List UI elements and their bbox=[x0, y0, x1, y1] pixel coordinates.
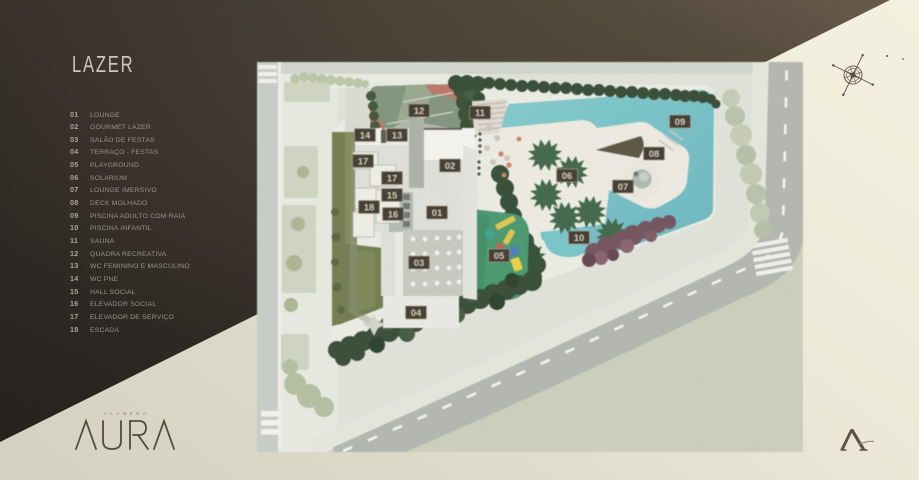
svg-text:ALAMEDA: ALAMEDA bbox=[104, 411, 149, 416]
